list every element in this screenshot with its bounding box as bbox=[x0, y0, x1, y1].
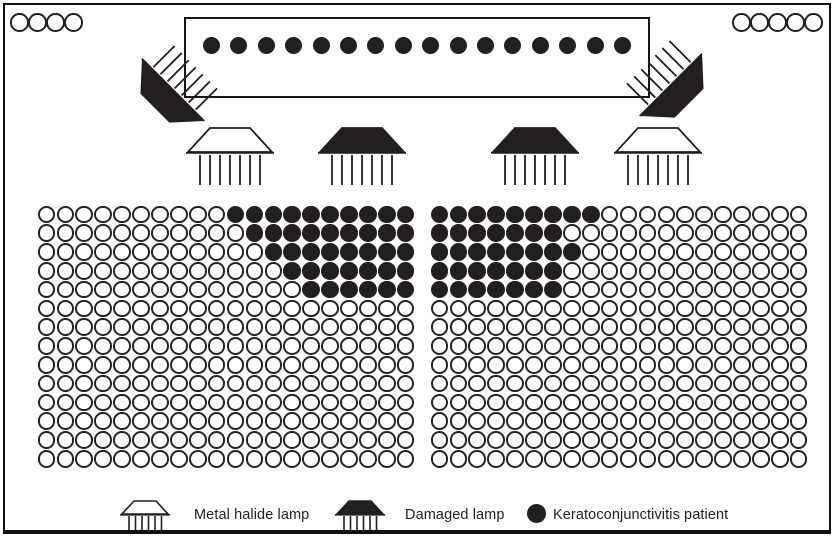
empty-seat bbox=[57, 394, 75, 412]
empty-seat bbox=[246, 356, 264, 374]
legend-label-metal-halide-lamp: Metal halide lamp bbox=[194, 507, 309, 523]
empty-seat bbox=[639, 394, 657, 412]
patient-dot bbox=[527, 504, 546, 523]
empty-seat bbox=[695, 412, 713, 430]
patient-seat bbox=[525, 281, 543, 299]
empty-seat bbox=[359, 356, 377, 374]
empty-seat bbox=[113, 337, 131, 355]
circle-marker bbox=[28, 13, 47, 32]
empty-seat bbox=[265, 450, 283, 468]
empty-seat bbox=[189, 243, 207, 261]
empty-seat bbox=[113, 318, 131, 336]
empty-seat bbox=[714, 412, 732, 430]
empty-seat bbox=[132, 375, 150, 393]
empty-seat bbox=[639, 262, 657, 280]
patient-seat bbox=[359, 281, 377, 299]
empty-seat bbox=[582, 412, 600, 430]
patient-dot bbox=[477, 37, 494, 54]
empty-seat bbox=[487, 450, 505, 468]
circle-marker bbox=[804, 13, 823, 32]
empty-seat bbox=[151, 450, 169, 468]
empty-seat bbox=[714, 375, 732, 393]
empty-seat bbox=[676, 206, 694, 224]
patient-seat bbox=[340, 224, 358, 242]
empty-seat bbox=[57, 281, 75, 299]
empty-seat bbox=[771, 450, 789, 468]
empty-seat bbox=[321, 412, 339, 430]
empty-seat bbox=[75, 450, 93, 468]
empty-seat bbox=[170, 431, 188, 449]
empty-seat bbox=[620, 431, 638, 449]
patient-seat bbox=[468, 243, 486, 261]
patient-seat bbox=[340, 281, 358, 299]
empty-seat bbox=[208, 243, 226, 261]
empty-seat bbox=[340, 300, 358, 318]
empty-seat bbox=[733, 224, 751, 242]
empty-seat bbox=[321, 431, 339, 449]
patient-dot bbox=[450, 37, 467, 54]
empty-seat bbox=[208, 300, 226, 318]
empty-seat bbox=[752, 375, 770, 393]
empty-seat bbox=[208, 281, 226, 299]
empty-seat bbox=[170, 450, 188, 468]
empty-seat bbox=[714, 206, 732, 224]
patient-seat bbox=[525, 243, 543, 261]
patient-seat bbox=[544, 224, 562, 242]
empty-seat bbox=[563, 450, 581, 468]
empty-seat bbox=[544, 394, 562, 412]
empty-seat bbox=[639, 281, 657, 299]
empty-seat bbox=[582, 431, 600, 449]
patient-seat bbox=[450, 262, 468, 280]
empty-seat bbox=[94, 318, 112, 336]
empty-seat bbox=[620, 450, 638, 468]
empty-seat bbox=[189, 412, 207, 430]
circle-marker bbox=[786, 13, 805, 32]
patient-seat bbox=[302, 262, 320, 280]
patient-seat bbox=[397, 243, 415, 261]
empty-seat bbox=[563, 337, 581, 355]
empty-seat bbox=[771, 431, 789, 449]
empty-seat bbox=[639, 300, 657, 318]
empty-seat bbox=[695, 281, 713, 299]
patient-seat bbox=[506, 262, 524, 280]
empty-seat bbox=[132, 243, 150, 261]
patient-icon bbox=[527, 504, 546, 523]
empty-seat bbox=[658, 412, 676, 430]
empty-seat bbox=[771, 281, 789, 299]
empty-seat bbox=[752, 206, 770, 224]
patient-seat bbox=[525, 262, 543, 280]
patient-seat bbox=[525, 206, 543, 224]
empty-seat bbox=[676, 375, 694, 393]
empty-seat bbox=[283, 375, 301, 393]
empty-seat bbox=[75, 394, 93, 412]
empty-seat bbox=[170, 243, 188, 261]
empty-seat bbox=[208, 450, 226, 468]
empty-seat bbox=[151, 262, 169, 280]
empty-seat bbox=[189, 300, 207, 318]
empty-seat bbox=[601, 412, 619, 430]
empty-seat bbox=[378, 394, 396, 412]
empty-seat bbox=[132, 431, 150, 449]
patient-seat bbox=[431, 206, 449, 224]
empty-seat bbox=[487, 337, 505, 355]
patient-seat bbox=[487, 206, 505, 224]
patient-seat bbox=[487, 262, 505, 280]
patient-seat bbox=[283, 243, 301, 261]
empty-seat bbox=[468, 375, 486, 393]
empty-seat bbox=[189, 262, 207, 280]
empty-seat bbox=[57, 318, 75, 336]
empty-seat bbox=[57, 224, 75, 242]
empty-seat bbox=[790, 431, 808, 449]
patient-dot bbox=[367, 37, 384, 54]
empty-seat bbox=[189, 224, 207, 242]
empty-seat bbox=[151, 375, 169, 393]
empty-seat bbox=[601, 450, 619, 468]
empty-seat bbox=[208, 224, 226, 242]
empty-seat bbox=[714, 300, 732, 318]
empty-seat bbox=[582, 243, 600, 261]
patient-seat bbox=[506, 224, 524, 242]
empty-seat bbox=[601, 375, 619, 393]
empty-seat bbox=[658, 337, 676, 355]
empty-seat bbox=[340, 394, 358, 412]
empty-seat bbox=[620, 243, 638, 261]
empty-seat bbox=[321, 337, 339, 355]
empty-seat bbox=[431, 412, 449, 430]
empty-seat bbox=[265, 281, 283, 299]
patient-seat bbox=[450, 243, 468, 261]
empty-seat bbox=[208, 262, 226, 280]
empty-seat bbox=[620, 206, 638, 224]
patient-seat bbox=[525, 224, 543, 242]
empty-seat bbox=[246, 337, 264, 355]
empty-seat bbox=[321, 394, 339, 412]
empty-seat bbox=[658, 243, 676, 261]
empty-seat bbox=[676, 281, 694, 299]
empty-seat bbox=[378, 375, 396, 393]
empty-seat bbox=[75, 412, 93, 430]
patient-seat bbox=[544, 243, 562, 261]
empty-seat bbox=[227, 375, 245, 393]
empty-seat bbox=[676, 412, 694, 430]
empty-seat bbox=[283, 431, 301, 449]
empty-seat bbox=[378, 431, 396, 449]
empty-seat bbox=[601, 300, 619, 318]
empty-seat bbox=[397, 450, 415, 468]
empty-seat bbox=[132, 224, 150, 242]
empty-seat bbox=[487, 318, 505, 336]
empty-seat bbox=[563, 318, 581, 336]
empty-seat bbox=[227, 337, 245, 355]
empty-seat bbox=[676, 262, 694, 280]
empty-seat bbox=[525, 300, 543, 318]
empty-seat bbox=[340, 412, 358, 430]
empty-seat bbox=[582, 318, 600, 336]
empty-seat bbox=[506, 431, 524, 449]
empty-seat bbox=[676, 356, 694, 374]
damaged-lamp-icon bbox=[335, 499, 385, 533]
empty-seat bbox=[601, 224, 619, 242]
empty-seat bbox=[38, 318, 56, 336]
empty-seat bbox=[563, 281, 581, 299]
empty-seat bbox=[359, 394, 377, 412]
empty-seat bbox=[246, 318, 264, 336]
empty-seat bbox=[620, 394, 638, 412]
empty-seat bbox=[378, 337, 396, 355]
empty-seat bbox=[450, 337, 468, 355]
legend-label-damaged-lamp: Damaged lamp bbox=[405, 507, 505, 523]
empty-seat bbox=[695, 243, 713, 261]
empty-seat bbox=[544, 412, 562, 430]
empty-seat bbox=[265, 300, 283, 318]
empty-seat bbox=[733, 243, 751, 261]
empty-seat bbox=[170, 206, 188, 224]
empty-seat bbox=[302, 394, 320, 412]
empty-seat bbox=[283, 300, 301, 318]
empty-seat bbox=[695, 337, 713, 355]
empty-seat bbox=[75, 431, 93, 449]
patient-seat bbox=[321, 281, 339, 299]
empty-seat bbox=[601, 243, 619, 261]
patient-seat bbox=[468, 262, 486, 280]
empty-seat bbox=[752, 318, 770, 336]
empty-seat bbox=[265, 431, 283, 449]
empty-seat bbox=[658, 394, 676, 412]
empty-seat bbox=[397, 318, 415, 336]
empty-seat bbox=[639, 450, 657, 468]
empty-seat bbox=[714, 356, 732, 374]
empty-seat bbox=[752, 224, 770, 242]
audience-seating-left-block bbox=[37, 205, 415, 468]
patient-seat bbox=[506, 281, 524, 299]
empty-seat bbox=[450, 412, 468, 430]
empty-seat bbox=[658, 281, 676, 299]
empty-seat bbox=[658, 206, 676, 224]
patient-seat bbox=[397, 206, 415, 224]
empty-seat bbox=[771, 224, 789, 242]
patient-seat bbox=[544, 281, 562, 299]
empty-seat bbox=[431, 318, 449, 336]
empty-seat bbox=[620, 281, 638, 299]
empty-seat bbox=[487, 412, 505, 430]
empty-seat bbox=[714, 281, 732, 299]
empty-seat bbox=[94, 394, 112, 412]
empty-seat bbox=[620, 356, 638, 374]
empty-seat bbox=[321, 375, 339, 393]
patient-seat bbox=[450, 281, 468, 299]
empty-seat bbox=[208, 394, 226, 412]
empty-seat bbox=[94, 243, 112, 261]
empty-seat bbox=[733, 300, 751, 318]
empty-seat bbox=[378, 356, 396, 374]
patient-seat bbox=[340, 262, 358, 280]
empty-seat bbox=[208, 431, 226, 449]
empty-seat bbox=[38, 224, 56, 242]
empty-seat bbox=[265, 412, 283, 430]
empty-seat bbox=[189, 206, 207, 224]
empty-seat bbox=[468, 337, 486, 355]
empty-seat bbox=[468, 394, 486, 412]
top-left-circle-markers bbox=[10, 13, 82, 32]
empty-seat bbox=[246, 394, 264, 412]
empty-seat bbox=[676, 450, 694, 468]
empty-seat bbox=[170, 412, 188, 430]
empty-seat bbox=[283, 356, 301, 374]
empty-seat bbox=[639, 431, 657, 449]
empty-seat bbox=[790, 375, 808, 393]
empty-seat bbox=[771, 337, 789, 355]
empty-seat bbox=[302, 300, 320, 318]
empty-seat bbox=[601, 318, 619, 336]
empty-seat bbox=[639, 318, 657, 336]
empty-seat bbox=[321, 356, 339, 374]
patient-seat bbox=[582, 206, 600, 224]
circle-marker bbox=[46, 13, 65, 32]
empty-seat bbox=[170, 262, 188, 280]
empty-seat bbox=[790, 224, 808, 242]
empty-seat bbox=[582, 262, 600, 280]
empty-seat bbox=[601, 394, 619, 412]
patient-seat bbox=[378, 206, 396, 224]
patient-dot bbox=[340, 37, 357, 54]
empty-seat bbox=[283, 318, 301, 336]
circle-marker bbox=[732, 13, 751, 32]
empty-seat bbox=[113, 412, 131, 430]
empty-seat bbox=[265, 375, 283, 393]
empty-seat bbox=[397, 394, 415, 412]
empty-seat bbox=[132, 356, 150, 374]
empty-seat bbox=[113, 281, 131, 299]
empty-seat bbox=[94, 337, 112, 355]
empty-seat bbox=[695, 318, 713, 336]
empty-seat bbox=[189, 431, 207, 449]
empty-seat bbox=[57, 337, 75, 355]
empty-seat bbox=[676, 337, 694, 355]
empty-seat bbox=[771, 206, 789, 224]
patient-seat bbox=[359, 206, 377, 224]
empty-seat bbox=[57, 262, 75, 280]
empty-seat bbox=[752, 300, 770, 318]
empty-seat bbox=[695, 206, 713, 224]
empty-seat bbox=[790, 394, 808, 412]
empty-seat bbox=[151, 394, 169, 412]
empty-seat bbox=[132, 394, 150, 412]
empty-seat bbox=[132, 337, 150, 355]
patient-seat bbox=[506, 243, 524, 261]
empty-seat bbox=[302, 431, 320, 449]
patient-seat bbox=[283, 224, 301, 242]
empty-seat bbox=[57, 356, 75, 374]
empty-seat bbox=[378, 318, 396, 336]
patient-seat bbox=[359, 262, 377, 280]
empty-seat bbox=[714, 394, 732, 412]
empty-seat bbox=[771, 318, 789, 336]
empty-seat bbox=[676, 224, 694, 242]
empty-seat bbox=[714, 243, 732, 261]
patient-seat bbox=[321, 243, 339, 261]
empty-seat bbox=[94, 431, 112, 449]
empty-seat bbox=[57, 412, 75, 430]
patient-seat bbox=[302, 243, 320, 261]
empty-seat bbox=[38, 281, 56, 299]
empty-seat bbox=[771, 262, 789, 280]
circle-marker bbox=[750, 13, 769, 32]
empty-seat bbox=[752, 356, 770, 374]
patient-dot bbox=[422, 37, 439, 54]
empty-seat bbox=[265, 394, 283, 412]
empty-seat bbox=[208, 206, 226, 224]
empty-seat bbox=[771, 243, 789, 261]
empty-seat bbox=[733, 431, 751, 449]
empty-seat bbox=[601, 206, 619, 224]
empty-seat bbox=[639, 224, 657, 242]
empty-seat bbox=[752, 243, 770, 261]
empty-seat bbox=[75, 224, 93, 242]
empty-seat bbox=[658, 318, 676, 336]
empty-seat bbox=[321, 300, 339, 318]
empty-seat bbox=[714, 337, 732, 355]
empty-seat bbox=[94, 300, 112, 318]
empty-seat bbox=[582, 375, 600, 393]
empty-seat bbox=[639, 206, 657, 224]
empty-seat bbox=[227, 394, 245, 412]
patient-seat bbox=[359, 224, 377, 242]
patient-seat bbox=[321, 224, 339, 242]
empty-seat bbox=[468, 450, 486, 468]
empty-seat bbox=[170, 300, 188, 318]
empty-seat bbox=[359, 337, 377, 355]
empty-seat bbox=[582, 394, 600, 412]
empty-seat bbox=[246, 450, 264, 468]
empty-seat bbox=[227, 412, 245, 430]
empty-seat bbox=[733, 450, 751, 468]
empty-seat bbox=[151, 318, 169, 336]
patient-seat bbox=[246, 224, 264, 242]
empty-seat bbox=[639, 356, 657, 374]
patient-seat bbox=[321, 206, 339, 224]
empty-seat bbox=[468, 431, 486, 449]
empty-seat bbox=[38, 262, 56, 280]
empty-seat bbox=[658, 356, 676, 374]
empty-seat bbox=[340, 356, 358, 374]
empty-seat bbox=[714, 450, 732, 468]
empty-seat bbox=[38, 206, 56, 224]
empty-seat bbox=[151, 224, 169, 242]
empty-seat bbox=[38, 337, 56, 355]
empty-seat bbox=[151, 300, 169, 318]
empty-seat bbox=[151, 412, 169, 430]
empty-seat bbox=[208, 337, 226, 355]
patient-seat bbox=[283, 262, 301, 280]
empty-seat bbox=[340, 450, 358, 468]
empty-seat bbox=[170, 337, 188, 355]
empty-seat bbox=[378, 450, 396, 468]
empty-seat bbox=[113, 450, 131, 468]
empty-seat bbox=[450, 431, 468, 449]
empty-seat bbox=[378, 412, 396, 430]
empty-seat bbox=[208, 356, 226, 374]
empty-seat bbox=[639, 243, 657, 261]
empty-seat bbox=[525, 375, 543, 393]
empty-seat bbox=[582, 281, 600, 299]
empty-seat bbox=[431, 431, 449, 449]
empty-seat bbox=[431, 356, 449, 374]
empty-seat bbox=[359, 318, 377, 336]
empty-seat bbox=[75, 281, 93, 299]
